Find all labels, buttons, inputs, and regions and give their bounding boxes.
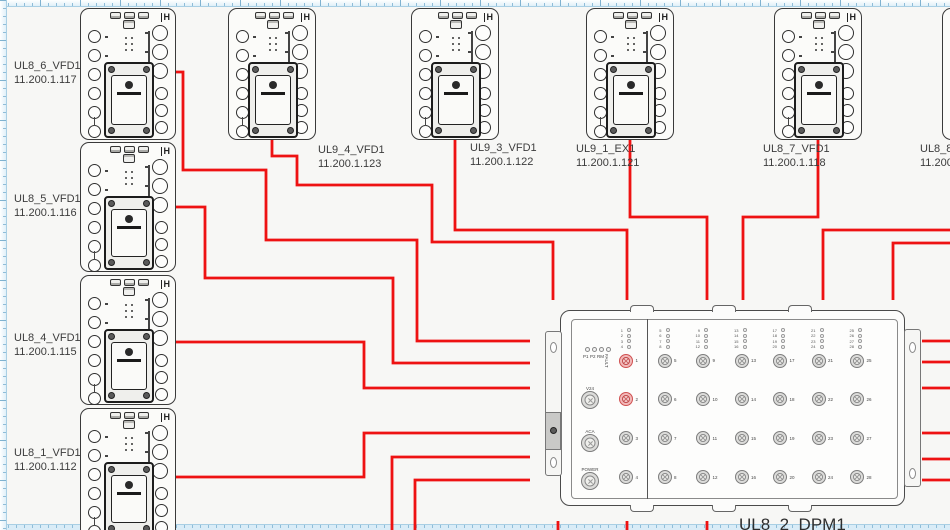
connector-port[interactable] bbox=[782, 30, 795, 43]
rail-mount-icon: H bbox=[161, 147, 171, 156]
port-20[interactable] bbox=[773, 470, 787, 484]
port-led bbox=[704, 328, 708, 332]
screw-icon bbox=[435, 66, 442, 73]
port-1[interactable] bbox=[619, 354, 633, 368]
device-ip: 11.200.1.122 bbox=[470, 155, 537, 169]
screw-icon bbox=[470, 66, 477, 73]
connector-port[interactable] bbox=[594, 49, 607, 62]
connector-port[interactable] bbox=[152, 311, 168, 327]
port-9[interactable] bbox=[696, 354, 710, 368]
connector-port[interactable] bbox=[88, 392, 101, 405]
port-number: 1 bbox=[636, 358, 639, 363]
device-UL8_8_V[interactable]: H bbox=[942, 8, 950, 140]
port-inner bbox=[661, 357, 669, 365]
tick-mark bbox=[468, 51, 471, 53]
connector-port[interactable] bbox=[152, 25, 168, 41]
panel-divider bbox=[647, 319, 648, 499]
port-7[interactable] bbox=[658, 431, 672, 445]
connector-port[interactable] bbox=[88, 487, 101, 500]
device-UL8_7_VFD1[interactable]: H bbox=[774, 8, 862, 140]
connector-port[interactable] bbox=[155, 354, 168, 367]
port-12[interactable] bbox=[696, 470, 710, 484]
port-4[interactable] bbox=[619, 470, 633, 484]
port-number: 9 bbox=[713, 358, 716, 363]
rail-mount-icon: H bbox=[659, 13, 669, 22]
screw-icon bbox=[143, 66, 150, 73]
mount-ear bbox=[712, 305, 736, 312]
port-inner bbox=[585, 438, 596, 449]
device-name: UL9_1_EX1 bbox=[576, 142, 639, 156]
port-inner bbox=[853, 473, 861, 481]
port-number: 2 bbox=[636, 397, 639, 402]
port-inner bbox=[853, 357, 861, 365]
led-dots-icon bbox=[123, 435, 134, 452]
connector-port[interactable] bbox=[155, 504, 168, 517]
mount-bracket-left bbox=[545, 331, 562, 476]
device-ip: 11.200.1.118 bbox=[763, 156, 830, 170]
mount-ear bbox=[630, 305, 654, 312]
port-led bbox=[743, 339, 747, 343]
device-UL8_1_VFD1[interactable]: H bbox=[80, 408, 176, 530]
brand-logo-icon bbox=[125, 348, 133, 356]
port-number: 4 bbox=[636, 475, 639, 480]
tick-mark bbox=[253, 36, 256, 38]
device-UL8_4_VFD1[interactable]: H bbox=[80, 275, 176, 405]
tick-mark bbox=[611, 36, 614, 38]
link-line bbox=[94, 517, 96, 526]
connector-port[interactable] bbox=[88, 87, 101, 100]
status-led-label: FAULT bbox=[604, 354, 609, 368]
drive-module bbox=[104, 329, 154, 403]
terminal-block-icon bbox=[124, 412, 135, 419]
mount-ear bbox=[630, 505, 654, 512]
led-dots-icon bbox=[267, 35, 278, 52]
connector-port[interactable] bbox=[155, 87, 168, 100]
port-led-number: 19 bbox=[769, 339, 777, 344]
port-led bbox=[704, 339, 708, 343]
screw-icon bbox=[833, 127, 840, 134]
tick-mark bbox=[643, 51, 646, 53]
connector-port[interactable] bbox=[292, 25, 308, 41]
port-inner bbox=[815, 357, 823, 365]
connector-port[interactable] bbox=[88, 468, 101, 481]
device-label: UL8_7_VFD111.200.1.118 bbox=[763, 142, 830, 170]
port-number: 21 bbox=[828, 358, 833, 363]
tick-mark bbox=[831, 51, 834, 53]
port-15[interactable] bbox=[735, 431, 749, 445]
port-21[interactable] bbox=[812, 354, 826, 368]
tick-mark bbox=[468, 32, 471, 34]
connector-port[interactable] bbox=[88, 335, 101, 348]
rail-mount-icon: H bbox=[161, 280, 171, 289]
mount-bracket-right bbox=[904, 329, 921, 487]
terminal-blocks-icon bbox=[801, 12, 840, 19]
tick-mark bbox=[105, 322, 108, 324]
port-inner bbox=[853, 434, 861, 442]
port-inner bbox=[776, 473, 784, 481]
port-led-number: 2 bbox=[615, 333, 623, 338]
device-UL9_3_VFD1[interactable]: H bbox=[411, 8, 499, 140]
port-led bbox=[743, 328, 747, 332]
port-11[interactable] bbox=[696, 431, 710, 445]
status-led-p1 bbox=[585, 347, 590, 352]
connector-port[interactable] bbox=[155, 371, 168, 384]
tick-mark bbox=[105, 55, 108, 57]
port-number: 23 bbox=[828, 436, 833, 441]
connector-port[interactable] bbox=[292, 44, 308, 60]
terminal-block-icon bbox=[283, 12, 294, 19]
connector-port[interactable] bbox=[88, 164, 101, 177]
tick-mark bbox=[285, 51, 288, 53]
port-led bbox=[627, 328, 631, 332]
drive-module bbox=[104, 196, 154, 270]
terminal-block-icon bbox=[138, 279, 149, 286]
connector-port[interactable] bbox=[594, 30, 607, 43]
device-UL9_1_EX1[interactable]: H bbox=[586, 8, 674, 140]
connector-port[interactable] bbox=[88, 221, 101, 234]
port-led-number: 22 bbox=[808, 333, 816, 338]
port-number: 26 bbox=[867, 397, 872, 402]
cable-12[interactable] bbox=[893, 243, 950, 300]
tick-mark bbox=[145, 185, 148, 187]
device-UL8_2_DPM1[interactable]: P1P2RMFAULTV24ACAPOWER112233445566778899… bbox=[560, 310, 905, 506]
terminal-blocks-icon bbox=[110, 279, 149, 286]
port-led-number: 7 bbox=[654, 339, 662, 344]
port-28[interactable] bbox=[850, 470, 864, 484]
tick-mark bbox=[643, 32, 646, 34]
connector-port[interactable] bbox=[475, 44, 491, 60]
rail-mount-icon: H bbox=[161, 13, 171, 22]
port-led bbox=[858, 339, 862, 343]
port-led-number: 23 bbox=[808, 339, 816, 344]
device-UL9_4_VFD1[interactable]: H bbox=[228, 8, 316, 140]
port-inner bbox=[738, 434, 746, 442]
terminal-blocks-icon bbox=[110, 146, 149, 153]
usb-port-icon bbox=[123, 287, 135, 296]
port-inner bbox=[853, 395, 861, 403]
port-led-number: 24 bbox=[808, 344, 816, 349]
terminal-block-icon bbox=[815, 12, 826, 19]
connector-port[interactable] bbox=[88, 297, 101, 310]
led-dots-icon bbox=[123, 169, 134, 186]
device-ip: 11.200.1.112 bbox=[14, 460, 81, 474]
port-number: 28 bbox=[867, 475, 872, 480]
tick-mark bbox=[145, 299, 148, 301]
status-led-fault bbox=[606, 347, 611, 352]
device-name: UL8_8_V bbox=[920, 142, 950, 156]
connector-port[interactable] bbox=[419, 30, 432, 43]
module-face bbox=[613, 75, 649, 125]
connector-port[interactable] bbox=[88, 49, 101, 62]
tick-mark bbox=[145, 166, 148, 168]
cable-4[interactable] bbox=[176, 433, 530, 477]
connector-port[interactable] bbox=[650, 25, 666, 41]
connector-port[interactable] bbox=[236, 49, 249, 62]
port-led-number: 10 bbox=[692, 333, 700, 338]
led-dots-icon bbox=[450, 35, 461, 52]
brand-logo-icon bbox=[269, 81, 277, 89]
connector-port[interactable] bbox=[155, 521, 168, 530]
port-led bbox=[781, 328, 785, 332]
drive-module bbox=[431, 62, 481, 138]
port-led bbox=[666, 334, 670, 338]
port-led-number: 28 bbox=[846, 344, 854, 349]
port-led-number: 8 bbox=[654, 344, 662, 349]
status-led-label: P1 bbox=[583, 354, 589, 359]
terminal-blocks-icon bbox=[613, 12, 652, 19]
cable-6[interactable] bbox=[415, 480, 530, 530]
port-led bbox=[627, 334, 631, 338]
aux-connector-aca[interactable] bbox=[581, 434, 599, 452]
connector-port[interactable] bbox=[152, 63, 168, 79]
module-nameplate bbox=[444, 92, 468, 95]
connector-port[interactable] bbox=[152, 178, 168, 194]
tick-mark bbox=[105, 436, 108, 438]
port-led bbox=[627, 345, 631, 349]
tick-mark bbox=[105, 455, 108, 457]
terminal-block-icon bbox=[627, 12, 638, 19]
connector-port[interactable] bbox=[88, 183, 101, 196]
connector-port[interactable] bbox=[88, 354, 101, 367]
tick-mark bbox=[145, 32, 148, 34]
connector-port[interactable] bbox=[155, 104, 168, 117]
port-number: 10 bbox=[713, 397, 718, 402]
device-name: UL8_4_VFD1 bbox=[14, 331, 81, 345]
tick-mark bbox=[105, 36, 108, 38]
device-ip: 11.200.1.123 bbox=[318, 157, 385, 171]
port-led-number: 3 bbox=[615, 339, 623, 344]
screw-icon bbox=[833, 66, 840, 73]
port-3[interactable] bbox=[619, 431, 633, 445]
screw-icon bbox=[143, 200, 150, 207]
screw-icon bbox=[435, 127, 442, 134]
terminal-block-icon bbox=[801, 12, 812, 19]
terminal-block-icon bbox=[138, 12, 149, 19]
connector-port[interactable] bbox=[88, 430, 101, 443]
port-number: 25 bbox=[867, 358, 872, 363]
module-face bbox=[111, 342, 147, 390]
link-line bbox=[242, 117, 244, 126]
connector-port[interactable] bbox=[155, 221, 168, 234]
connector-port[interactable] bbox=[155, 487, 168, 500]
port-number: 17 bbox=[790, 358, 795, 363]
port-number: 19 bbox=[790, 436, 795, 441]
terminal-block-icon bbox=[110, 146, 121, 153]
connector-port[interactable] bbox=[152, 330, 168, 346]
port-led-number: 1 bbox=[615, 328, 623, 333]
aux-connector-power[interactable] bbox=[581, 472, 599, 490]
status-led-rm bbox=[599, 347, 604, 352]
connector-port[interactable] bbox=[152, 292, 168, 308]
connector-port[interactable] bbox=[155, 121, 168, 134]
device-label: UL8_1_VFD111.200.1.112 bbox=[14, 446, 81, 474]
port-17[interactable] bbox=[773, 354, 787, 368]
screw-icon bbox=[108, 66, 115, 73]
port-5[interactable] bbox=[658, 354, 672, 368]
led-dots-icon bbox=[813, 35, 824, 52]
cable-11[interactable] bbox=[823, 230, 950, 300]
terminal-block-icon bbox=[124, 12, 135, 19]
tick-mark bbox=[436, 55, 439, 57]
usb-port-icon bbox=[813, 20, 825, 29]
diagram-canvas[interactable]: UL8_2_DPM1 HUL8_6_VFD111.200.1.117HUL8_5… bbox=[0, 0, 950, 530]
port-led bbox=[666, 345, 670, 349]
drive-module bbox=[104, 462, 154, 530]
port-26[interactable] bbox=[850, 392, 864, 406]
port-27[interactable] bbox=[850, 431, 864, 445]
screw-icon bbox=[143, 127, 150, 134]
connector-port[interactable] bbox=[782, 49, 795, 62]
connector-port[interactable] bbox=[152, 159, 168, 175]
cable-3[interactable] bbox=[176, 342, 530, 388]
device-name: UL8_5_VFD1 bbox=[14, 192, 81, 206]
port-led-number: 14 bbox=[731, 333, 739, 338]
port-led bbox=[820, 345, 824, 349]
connector-port[interactable] bbox=[88, 68, 101, 81]
screw-icon bbox=[550, 427, 557, 434]
cable-9[interactable] bbox=[630, 140, 707, 300]
connector-port[interactable] bbox=[650, 44, 666, 60]
port-inner bbox=[776, 434, 784, 442]
port-inner bbox=[585, 395, 596, 406]
port-25[interactable] bbox=[850, 354, 864, 368]
port-led bbox=[704, 345, 708, 349]
connector-port[interactable] bbox=[88, 125, 101, 138]
module-face bbox=[801, 75, 837, 125]
screw-icon bbox=[287, 66, 294, 73]
port-14[interactable] bbox=[735, 392, 749, 406]
connector-port[interactable] bbox=[475, 25, 491, 41]
port-inner bbox=[622, 473, 630, 481]
aux-connector-v24[interactable] bbox=[581, 391, 599, 409]
mount-ear bbox=[712, 505, 736, 512]
port-inner bbox=[622, 357, 630, 365]
port-inner bbox=[776, 357, 784, 365]
port-inner bbox=[699, 473, 707, 481]
led-dots-icon bbox=[123, 302, 134, 319]
port-led-number: 12 bbox=[692, 344, 700, 349]
brand-logo-icon bbox=[452, 81, 460, 89]
connector-port[interactable] bbox=[152, 425, 168, 441]
port-inner bbox=[738, 473, 746, 481]
port-16[interactable] bbox=[735, 470, 749, 484]
tick-mark bbox=[611, 55, 614, 57]
usb-port-icon bbox=[267, 20, 279, 29]
tick-mark bbox=[285, 32, 288, 34]
port-6[interactable] bbox=[658, 392, 672, 406]
terminal-block-icon bbox=[124, 146, 135, 153]
device-label: UL9_3_VFD111.200.1.122 bbox=[470, 141, 537, 169]
port-led-number: 20 bbox=[769, 344, 777, 349]
connector-port[interactable] bbox=[155, 388, 168, 401]
connector-port[interactable] bbox=[419, 49, 432, 62]
connector-port[interactable] bbox=[88, 30, 101, 43]
port-led-number: 26 bbox=[846, 333, 854, 338]
port-19[interactable] bbox=[773, 431, 787, 445]
usb-port-icon bbox=[123, 154, 135, 163]
connector-port[interactable] bbox=[152, 44, 168, 60]
screw-icon bbox=[108, 466, 115, 473]
terminal-blocks-icon bbox=[255, 12, 294, 19]
port-18[interactable] bbox=[773, 392, 787, 406]
usb-port-icon bbox=[123, 420, 135, 429]
port-22[interactable] bbox=[812, 392, 826, 406]
device-UL8_5_VFD1[interactable]: H bbox=[80, 142, 176, 272]
connector-port[interactable] bbox=[88, 202, 101, 215]
port-inner bbox=[699, 357, 707, 365]
port-led-number: 5 bbox=[654, 328, 662, 333]
port-inner bbox=[661, 473, 669, 481]
screw-icon bbox=[143, 466, 150, 473]
port-inner bbox=[815, 395, 823, 403]
rail-mount-icon: H bbox=[161, 413, 171, 422]
device-label: UL8_5_VFD111.200.1.116 bbox=[14, 192, 81, 220]
port-number: 16 bbox=[751, 475, 756, 480]
module-face bbox=[111, 209, 147, 257]
port-led-number: 18 bbox=[769, 333, 777, 338]
port-led-number: 4 bbox=[615, 344, 623, 349]
port-led-number: 6 bbox=[654, 333, 662, 338]
device-UL8_6_VFD1[interactable]: H bbox=[80, 8, 176, 140]
device-ip: 11.200.1.117 bbox=[14, 73, 81, 87]
terminal-block-icon bbox=[110, 412, 121, 419]
screw-icon bbox=[108, 127, 115, 134]
connector-port[interactable] bbox=[88, 259, 101, 272]
port-2[interactable] bbox=[619, 392, 633, 406]
port-number: 3 bbox=[636, 436, 639, 441]
port-led bbox=[666, 328, 670, 332]
device-label: UL9_1_EX111.200.1.121 bbox=[576, 142, 639, 170]
port-24[interactable] bbox=[812, 470, 826, 484]
port-number: 6 bbox=[674, 397, 677, 402]
port-led bbox=[858, 328, 862, 332]
connector-port[interactable] bbox=[155, 238, 168, 251]
screw-icon bbox=[610, 66, 617, 73]
connector-port[interactable] bbox=[152, 197, 168, 213]
port-23[interactable] bbox=[812, 431, 826, 445]
port-inner bbox=[738, 395, 746, 403]
port-inner bbox=[776, 395, 784, 403]
terminal-blocks-icon bbox=[110, 12, 149, 19]
port-led bbox=[704, 334, 708, 338]
connector-port[interactable] bbox=[88, 316, 101, 329]
terminal-block-icon bbox=[110, 12, 121, 19]
tick-mark bbox=[105, 189, 108, 191]
port-10[interactable] bbox=[696, 392, 710, 406]
cable-5[interactable] bbox=[392, 457, 530, 530]
module-face bbox=[111, 75, 147, 125]
port-8[interactable] bbox=[658, 470, 672, 484]
connector-port[interactable] bbox=[838, 25, 854, 41]
connector-port[interactable] bbox=[236, 30, 249, 43]
connector-port[interactable] bbox=[152, 463, 168, 479]
terminal-block-icon bbox=[829, 12, 840, 19]
connector-port[interactable] bbox=[155, 255, 168, 268]
connector-port[interactable] bbox=[152, 444, 168, 460]
brand-logo-icon bbox=[125, 215, 133, 223]
tick-mark bbox=[799, 36, 802, 38]
port-13[interactable] bbox=[735, 354, 749, 368]
screw-hole bbox=[550, 457, 557, 468]
module-nameplate bbox=[117, 492, 141, 495]
terminal-blocks-icon bbox=[438, 12, 477, 19]
port-inner bbox=[699, 395, 707, 403]
link-line bbox=[600, 117, 602, 126]
connector-port[interactable] bbox=[838, 44, 854, 60]
port-led bbox=[820, 328, 824, 332]
connector-port[interactable] bbox=[88, 449, 101, 462]
port-number: 24 bbox=[828, 475, 833, 480]
